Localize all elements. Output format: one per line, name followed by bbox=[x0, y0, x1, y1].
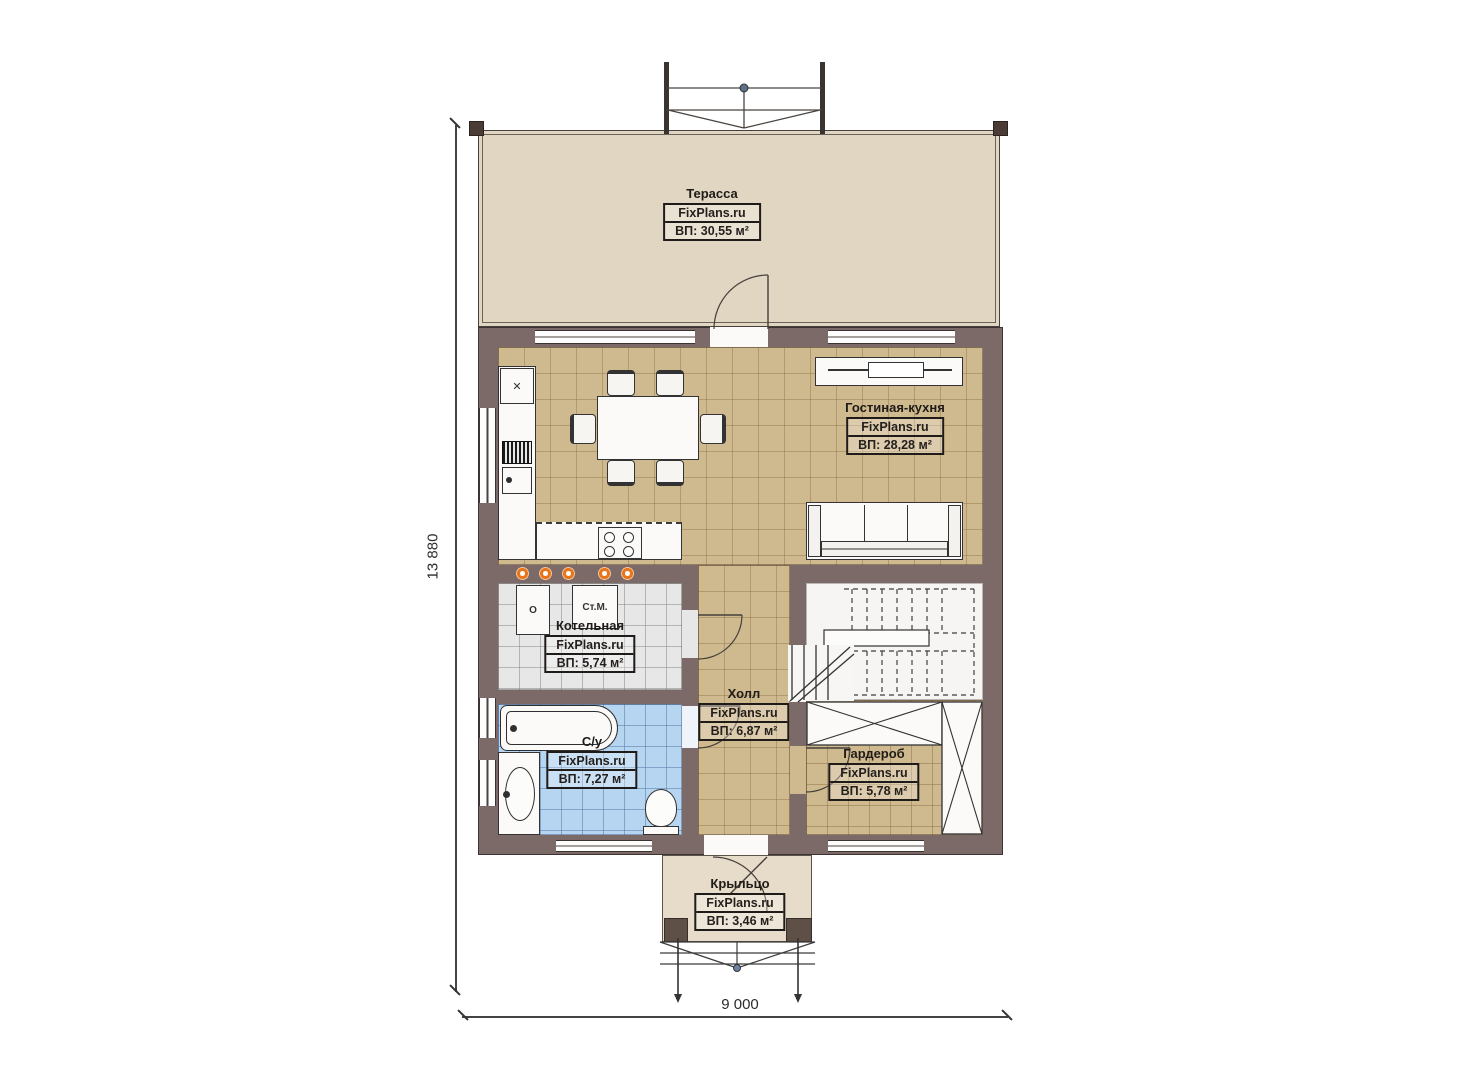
window bbox=[479, 698, 496, 738]
chair bbox=[656, 460, 684, 486]
boiler-door-arc bbox=[696, 610, 746, 664]
chair bbox=[607, 460, 635, 486]
window bbox=[479, 760, 496, 806]
window bbox=[535, 330, 695, 344]
light-dot-icon bbox=[516, 567, 529, 580]
dimension-line-vertical bbox=[455, 125, 457, 992]
x-icon: ✕ bbox=[512, 380, 521, 393]
room-area: ВП: 6,87 м² bbox=[700, 723, 787, 739]
room-name: Крыльцо bbox=[710, 876, 769, 891]
terrace-door-arc bbox=[705, 270, 775, 332]
stove bbox=[598, 527, 642, 559]
window bbox=[556, 840, 652, 852]
light-dot-icon bbox=[598, 567, 611, 580]
room-name: Гостиная-кухня bbox=[845, 400, 945, 415]
porch-steps bbox=[655, 938, 820, 1004]
watermark-text: FixPlans.ru bbox=[696, 895, 783, 913]
dining-table bbox=[597, 396, 699, 460]
room-name: С/у bbox=[582, 734, 602, 749]
interior-wall bbox=[790, 583, 806, 835]
faucet-icon bbox=[503, 791, 510, 798]
terrace-stairs bbox=[650, 58, 840, 138]
room-info-box: FixPlans.ru ВП: 5,74 м² bbox=[544, 635, 635, 673]
room-area: ВП: 3,46 м² bbox=[696, 913, 783, 929]
light-dot-icon bbox=[621, 567, 634, 580]
room-info-box: FixPlans.ru ВП: 28,28 м² bbox=[846, 417, 944, 455]
interior-wall bbox=[790, 565, 983, 583]
corner-cabinet: ✕ bbox=[500, 368, 534, 404]
room-name: Терасса bbox=[686, 186, 738, 201]
burner-icon bbox=[604, 532, 615, 543]
sofa-back bbox=[821, 541, 948, 557]
dimension-tick bbox=[1001, 1009, 1012, 1020]
sofa-armrest bbox=[808, 505, 821, 557]
kitchen-sink bbox=[502, 467, 532, 494]
room-info-box: FixPlans.ru ВП: 7,27 м² bbox=[546, 751, 637, 789]
boiler-room-label: Котельная FixPlans.ru ВП: 5,74 м² bbox=[544, 618, 635, 673]
watermark-text: FixPlans.ru bbox=[848, 419, 942, 437]
terrace-post bbox=[469, 121, 484, 136]
room-area: ВП: 5,78 м² bbox=[830, 783, 917, 799]
dimension-tick bbox=[457, 1009, 468, 1020]
window bbox=[479, 408, 496, 503]
terrace-post bbox=[993, 121, 1008, 136]
watermark-text: FixPlans.ru bbox=[548, 753, 635, 771]
room-info-box: FixPlans.ru ВП: 6,87 м² bbox=[698, 703, 789, 741]
porch-label: Крыльцо FixPlans.ru ВП: 3,46 м² bbox=[694, 876, 785, 931]
light-dot-icon bbox=[539, 567, 552, 580]
room-info-box: FixPlans.ru ВП: 5,78 м² bbox=[828, 763, 919, 801]
burner-icon bbox=[623, 546, 634, 557]
faucet-icon bbox=[506, 477, 512, 483]
floor-plan-canvas: 13 880 9 000 bbox=[0, 0, 1473, 1080]
window bbox=[828, 330, 955, 344]
bathroom-label: С/у FixPlans.ru ВП: 7,27 м² bbox=[546, 734, 637, 789]
bathroom-sink bbox=[505, 767, 535, 821]
sofa-cushion-divider bbox=[907, 505, 908, 542]
washing-machine-label: Ст.М. bbox=[582, 602, 607, 613]
chair bbox=[570, 414, 596, 444]
wall-lights-row bbox=[498, 565, 682, 583]
burner-icon bbox=[604, 546, 615, 557]
watermark-text: FixPlans.ru bbox=[665, 205, 759, 223]
interior-wall bbox=[498, 690, 682, 704]
dimension-height-label: 13 880 bbox=[425, 517, 442, 597]
front-door-opening bbox=[704, 835, 768, 855]
sofa bbox=[806, 502, 963, 560]
watermark-text: FixPlans.ru bbox=[830, 765, 917, 783]
terrace-label: Терасса FixPlans.ru ВП: 30,55 м² bbox=[663, 186, 761, 241]
sofa-cushion-divider bbox=[864, 505, 865, 542]
wardrobe-closet-top bbox=[806, 701, 943, 746]
toilet-tank bbox=[643, 826, 679, 835]
window bbox=[828, 840, 924, 852]
dimension-line-horizontal bbox=[462, 1016, 1008, 1018]
room-area: ВП: 28,28 м² bbox=[848, 437, 942, 453]
room-info-box: FixPlans.ru ВП: 3,46 м² bbox=[694, 893, 785, 931]
room-area: ВП: 5,74 м² bbox=[546, 655, 633, 671]
watermark-text: FixPlans.ru bbox=[700, 705, 787, 723]
room-name: Холл bbox=[728, 686, 761, 701]
living-kitchen-label: Гостиная-кухня FixPlans.ru ВП: 28,28 м² bbox=[845, 400, 945, 455]
hall-label: Холл FixPlans.ru ВП: 6,87 м² bbox=[698, 686, 789, 741]
room-name: Котельная bbox=[556, 618, 624, 633]
fridge bbox=[502, 441, 532, 464]
watermark-text: FixPlans.ru bbox=[546, 637, 633, 655]
boiler-unit-label: О bbox=[529, 605, 537, 616]
sofa-armrest bbox=[948, 505, 961, 557]
toilet-bowl bbox=[645, 789, 677, 827]
chair bbox=[656, 370, 684, 396]
burner-icon bbox=[623, 532, 634, 543]
chair bbox=[700, 414, 726, 444]
tv bbox=[868, 362, 924, 378]
wardrobe-closet-right bbox=[941, 701, 983, 835]
light-dot-icon bbox=[562, 567, 575, 580]
room-area: ВП: 30,55 м² bbox=[665, 223, 759, 239]
wardrobe-label: Гардероб FixPlans.ru ВП: 5,78 м² bbox=[828, 746, 919, 801]
staircase-lower-steps bbox=[788, 645, 854, 702]
chair bbox=[607, 370, 635, 396]
room-area: ВП: 7,27 м² bbox=[548, 771, 635, 787]
faucet-icon bbox=[510, 725, 517, 732]
room-info-box: FixPlans.ru ВП: 30,55 м² bbox=[663, 203, 761, 241]
room-name: Гардероб bbox=[843, 746, 904, 761]
